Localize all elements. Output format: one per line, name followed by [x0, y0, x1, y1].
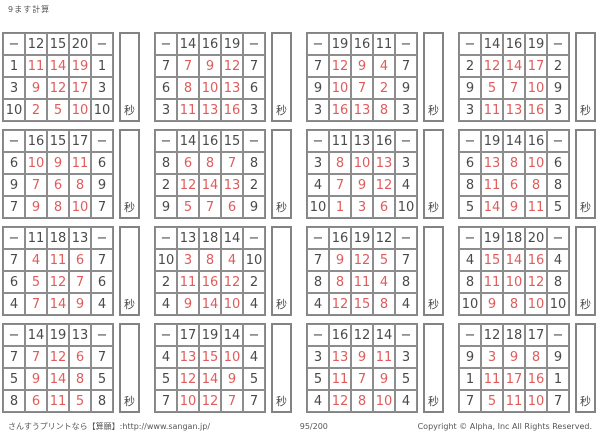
minus-sign-cell: − [243, 130, 265, 152]
answer-cell: 7 [221, 152, 243, 174]
minuend-cell: 13 [69, 227, 91, 249]
answer-cell: 5 [177, 196, 199, 218]
minuend-cell: 18 [503, 227, 525, 249]
answer-cell: 12 [373, 174, 395, 196]
answer-cell: 14 [47, 293, 69, 315]
calc-table-group: −131814−1038410211161224914104秒 [154, 226, 292, 316]
subtrahend-cell-right: 7 [243, 55, 265, 77]
answer-cell: 8 [351, 390, 373, 412]
seconds-box: 秒 [575, 129, 596, 219]
answer-cell: 12 [221, 55, 243, 77]
seconds-label: 秒 [124, 296, 135, 314]
subtrahend-cell-right: 5 [91, 368, 113, 390]
answer-cell: 17 [525, 55, 547, 77]
answer-cell: 9 [199, 55, 221, 77]
answer-cell: 5 [47, 99, 69, 121]
answer-cell: 13 [199, 99, 221, 121]
subtraction-table: −191416−61381068116885149115 [458, 129, 570, 219]
minuend-cell: 14 [481, 33, 503, 55]
minus-sign-cell: − [3, 33, 25, 55]
minus-sign-cell: − [155, 130, 177, 152]
answer-cell: 10 [221, 346, 243, 368]
answer-cell: 11 [177, 99, 199, 121]
answer-cell: 10 [525, 77, 547, 99]
seconds-label: 秒 [124, 102, 135, 120]
subtrahend-cell-right: 9 [243, 196, 265, 218]
answer-cell: 11 [351, 271, 373, 293]
answer-cell: 5 [25, 271, 47, 293]
answer-cell: 13 [221, 77, 243, 99]
answer-cell: 1 [329, 196, 351, 218]
answer-cell: 11 [481, 271, 503, 293]
answer-cell: 6 [503, 174, 525, 196]
subtrahend-cell-left: 3 [307, 99, 329, 121]
subtraction-table: −161214−31391135117954128104 [306, 323, 418, 413]
subtrahend-cell-left: 1 [3, 55, 25, 77]
answer-cell: 10 [525, 390, 547, 412]
worksheet-page: 9ます計算 −121520−11114191391217310251010秒−1… [0, 0, 600, 439]
subtrahend-cell-left: 3 [307, 346, 329, 368]
subtrahend-cell-right: 6 [91, 152, 113, 174]
subtrahend-cell-left: 8 [155, 152, 177, 174]
seconds-label: 秒 [428, 296, 439, 314]
minuend-cell: 17 [69, 130, 91, 152]
answer-cell: 13 [221, 174, 243, 196]
subtrahend-cell-left: 8 [459, 174, 481, 196]
subtrahend-cell-left: 7 [155, 390, 177, 412]
minuend-cell: 14 [177, 33, 199, 55]
subtraction-table: −141619−779127681013631113163 [154, 32, 266, 122]
answer-cell: 10 [525, 152, 547, 174]
minuend-cell: 12 [373, 227, 395, 249]
answer-cell: 6 [69, 249, 91, 271]
minus-sign-cell: − [547, 227, 569, 249]
answer-cell: 6 [69, 346, 91, 368]
minus-sign-cell: − [3, 130, 25, 152]
seconds-box: 秒 [575, 323, 596, 413]
answer-cell: 13 [481, 152, 503, 174]
answer-cell: 17 [69, 77, 91, 99]
answer-cell: 7 [503, 77, 525, 99]
answer-cell: 11 [47, 390, 69, 412]
answer-cell: 7 [69, 271, 91, 293]
answer-cell: 6 [221, 196, 243, 218]
answer-cell: 11 [503, 390, 525, 412]
answer-cell: 8 [69, 368, 91, 390]
answer-cell: 6 [177, 152, 199, 174]
subtrahend-cell-right: 5 [243, 368, 265, 390]
answer-cell: 8 [329, 271, 351, 293]
seconds-box: 秒 [423, 129, 444, 219]
subtrahend-cell-right: 7 [395, 249, 417, 271]
subtrahend-cell-right: 7 [91, 249, 113, 271]
answer-cell: 5 [69, 390, 91, 412]
subtrahend-cell-right: 7 [395, 55, 417, 77]
answer-cell: 9 [481, 293, 503, 315]
answer-cell: 16 [221, 99, 243, 121]
subtraction-table: −141619−2121417295710931113163 [458, 32, 570, 122]
subtraction-table: −161517−610911697689798107 [2, 129, 114, 219]
subtrahend-cell-left: 3 [307, 152, 329, 174]
answer-cell: 10 [199, 77, 221, 99]
answer-cell: 9 [221, 368, 243, 390]
minus-sign-cell: − [3, 227, 25, 249]
subtrahend-cell-left: 4 [155, 293, 177, 315]
answer-cell: 15 [351, 293, 373, 315]
subtrahend-cell-right: 8 [395, 271, 417, 293]
subtrahend-cell-left: 6 [155, 77, 177, 99]
minus-sign-cell: − [3, 324, 25, 346]
seconds-box: 秒 [271, 226, 292, 316]
minuend-cell: 19 [329, 33, 351, 55]
subtrahend-cell-left: 9 [459, 77, 481, 99]
subtrahend-cell-left: 6 [459, 152, 481, 174]
minus-sign-cell: − [459, 33, 481, 55]
minus-sign-cell: − [155, 227, 177, 249]
answer-cell: 7 [221, 390, 243, 412]
minuend-cell: 14 [177, 130, 199, 152]
calc-table-group: −161214−31391135117954128104秒 [306, 323, 444, 413]
answer-cell: 12 [177, 368, 199, 390]
subtrahend-cell-right: 6 [243, 77, 265, 99]
subtrahend-cell-left: 7 [155, 55, 177, 77]
calc-table-group: −141619−779127681013631113163秒 [154, 32, 292, 122]
answer-cell: 8 [503, 293, 525, 315]
answer-cell: 8 [329, 152, 351, 174]
answer-cell: 11 [373, 346, 395, 368]
subtrahend-cell-left: 4 [307, 174, 329, 196]
answer-cell: 10 [503, 271, 525, 293]
answer-cell: 11 [525, 196, 547, 218]
answer-cell: 14 [199, 174, 221, 196]
subtrahend-cell-left: 5 [307, 368, 329, 390]
subtrahend-cell-left: 4 [459, 249, 481, 271]
subtraction-table: −161912−7912578811484121584 [306, 226, 418, 316]
seconds-label: 秒 [428, 102, 439, 120]
answer-cell: 7 [177, 55, 199, 77]
answer-cell: 9 [373, 368, 395, 390]
answer-cell: 16 [525, 99, 547, 121]
answer-cell: 13 [373, 152, 395, 174]
seconds-label: 秒 [276, 393, 287, 411]
seconds-box: 秒 [119, 323, 140, 413]
subtrahend-cell-right: 3 [547, 99, 569, 121]
calc-table-group: −141615−868782121413295769秒 [154, 129, 292, 219]
seconds-box: 秒 [423, 32, 444, 122]
calc-table-group: −141913−771267591485861158秒 [2, 323, 140, 413]
seconds-label: 秒 [580, 199, 591, 217]
calc-table-group: −191416−61381068116885149115秒 [458, 129, 596, 219]
answer-cell: 16 [525, 249, 547, 271]
subtrahend-cell-left: 2 [155, 271, 177, 293]
minuend-cell: 19 [221, 33, 243, 55]
minus-sign-cell: − [307, 33, 329, 55]
answer-cell: 8 [373, 99, 395, 121]
seconds-label: 秒 [580, 296, 591, 314]
answer-cell: 12 [221, 271, 243, 293]
subtrahend-cell-left: 3 [459, 99, 481, 121]
minus-sign-cell: − [91, 324, 113, 346]
answer-cell: 9 [351, 174, 373, 196]
seconds-box: 秒 [271, 129, 292, 219]
answer-cell: 4 [221, 249, 243, 271]
minuend-cell: 12 [25, 33, 47, 55]
answer-cell: 11 [69, 152, 91, 174]
answer-cell: 10 [373, 390, 395, 412]
subtrahend-cell-left: 10 [3, 99, 25, 121]
seconds-box: 秒 [423, 226, 444, 316]
subtrahend-cell-left: 6 [3, 152, 25, 174]
subtrahend-cell-left: 9 [155, 196, 177, 218]
answer-cell: 8 [199, 249, 221, 271]
subtraction-table: −111316−38101334791241013610 [306, 129, 418, 219]
seconds-label: 秒 [428, 199, 439, 217]
calc-table-group: −161517−610911697689798107秒 [2, 129, 140, 219]
calc-table-group: −141619−2121417295710931113163秒 [458, 32, 596, 122]
minus-sign-cell: − [307, 227, 329, 249]
calc-table-group: −191611−7129479107293161383秒 [306, 32, 444, 122]
answer-cell: 8 [525, 174, 547, 196]
answer-cell: 5 [481, 390, 503, 412]
minuend-cell: 13 [177, 227, 199, 249]
subtrahend-cell-left: 3 [3, 77, 25, 99]
answer-cell: 5 [373, 249, 395, 271]
subtrahend-cell-right: 4 [395, 293, 417, 315]
minuend-cell: 16 [25, 130, 47, 152]
answer-cell: 13 [329, 346, 351, 368]
answer-cell: 9 [25, 368, 47, 390]
answer-cell: 14 [503, 55, 525, 77]
minuend-cell: 16 [199, 130, 221, 152]
answer-cell: 7 [25, 174, 47, 196]
calc-table-group: −191820−415141648111012810981010秒 [458, 226, 596, 316]
page-footer: さんすうプリントなら【算願】:http://www.sangan.jp/ 95/… [0, 421, 600, 432]
answer-cell: 7 [351, 77, 373, 99]
answer-cell: 16 [199, 271, 221, 293]
answer-cell: 2 [25, 99, 47, 121]
answer-cell: 7 [329, 174, 351, 196]
answer-cell: 4 [373, 271, 395, 293]
answer-cell: 6 [47, 174, 69, 196]
answer-cell: 11 [481, 99, 503, 121]
subtrahend-cell-left: 1 [459, 368, 481, 390]
minuend-cell: 16 [329, 324, 351, 346]
subtrahend-cell-right: 2 [547, 55, 569, 77]
answer-cell: 11 [329, 368, 351, 390]
subtrahend-cell-left: 4 [307, 390, 329, 412]
subtrahend-cell-right: 2 [243, 271, 265, 293]
seconds-label: 秒 [580, 102, 591, 120]
subtrahend-cell-left: 4 [307, 293, 329, 315]
subtrahend-cell-right: 3 [91, 77, 113, 99]
subtrahend-cell-left: 10 [307, 196, 329, 218]
answer-cell: 8 [199, 152, 221, 174]
answer-cell: 14 [47, 368, 69, 390]
subtrahend-cell-left: 7 [307, 249, 329, 271]
minus-sign-cell: − [547, 33, 569, 55]
seconds-box: 秒 [119, 129, 140, 219]
answer-cell: 12 [199, 390, 221, 412]
answer-cell: 10 [351, 152, 373, 174]
minus-sign-cell: − [547, 130, 569, 152]
minus-sign-cell: − [395, 130, 417, 152]
answer-cell: 5 [481, 77, 503, 99]
subtrahend-cell-left: 9 [459, 346, 481, 368]
seconds-box: 秒 [575, 32, 596, 122]
minuend-cell: 20 [525, 227, 547, 249]
answer-cell: 9 [25, 196, 47, 218]
minus-sign-cell: − [155, 324, 177, 346]
minus-sign-cell: − [307, 130, 329, 152]
answer-cell: 4 [373, 55, 395, 77]
subtraction-table: −191820−415141648111012810981010 [458, 226, 570, 316]
subtrahend-cell-left: 8 [3, 390, 25, 412]
subtraction-table: −131814−1038410211161224914104 [154, 226, 266, 316]
minus-sign-cell: − [91, 227, 113, 249]
minus-sign-cell: − [243, 33, 265, 55]
minus-sign-cell: − [243, 324, 265, 346]
answer-cell: 8 [503, 152, 525, 174]
subtraction-table: −141615−868782121413295769 [154, 129, 266, 219]
minus-sign-cell: − [459, 130, 481, 152]
subtrahend-cell-left: 7 [3, 249, 25, 271]
subtrahend-cell-right: 7 [91, 196, 113, 218]
answer-cell: 11 [25, 55, 47, 77]
subtrahend-cell-left: 8 [459, 271, 481, 293]
calc-table-group: −111316−38101334791241013610秒 [306, 129, 444, 219]
minuend-cell: 12 [481, 324, 503, 346]
seconds-label: 秒 [124, 199, 135, 217]
answer-cell: 7 [199, 196, 221, 218]
minuend-cell: 16 [373, 130, 395, 152]
minus-sign-cell: − [459, 324, 481, 346]
answer-cell: 9 [503, 196, 525, 218]
answer-cell: 10 [177, 390, 199, 412]
seconds-box: 秒 [119, 226, 140, 316]
answer-cell: 11 [47, 249, 69, 271]
subtrahend-cell-right: 5 [395, 368, 417, 390]
subtrahend-cell-left: 5 [459, 196, 481, 218]
subtrahend-cell-right: 3 [395, 346, 417, 368]
minuend-cell: 16 [525, 130, 547, 152]
minuend-cell: 11 [25, 227, 47, 249]
minus-sign-cell: − [547, 324, 569, 346]
subtrahend-cell-right: 3 [395, 99, 417, 121]
answer-cell: 13 [503, 99, 525, 121]
answer-cell: 9 [351, 346, 373, 368]
minuend-cell: 19 [481, 227, 503, 249]
minuend-cell: 17 [525, 324, 547, 346]
subtrahend-cell-left: 2 [155, 174, 177, 196]
minuend-cell: 18 [47, 227, 69, 249]
minuend-cell: 17 [177, 324, 199, 346]
answer-cell: 12 [329, 55, 351, 77]
minuend-cell: 14 [373, 324, 395, 346]
answer-cell: 15 [199, 346, 221, 368]
answer-cell: 8 [69, 174, 91, 196]
minuend-cell: 19 [351, 227, 373, 249]
answer-cell: 8 [47, 196, 69, 218]
answer-cell: 8 [177, 77, 199, 99]
calc-table-group: −111813−741167651276471494秒 [2, 226, 140, 316]
subtrahend-cell-right: 4 [243, 293, 265, 315]
subtrahend-cell-right: 3 [243, 99, 265, 121]
answer-cell: 6 [373, 196, 395, 218]
minuend-cell: 15 [221, 130, 243, 152]
minuend-cell: 18 [199, 227, 221, 249]
minuend-cell: 18 [503, 324, 525, 346]
subtrahend-cell-left: 7 [459, 390, 481, 412]
answer-cell: 12 [329, 293, 351, 315]
answer-cell: 12 [525, 271, 547, 293]
subtraction-table: −111813−741167651276471494 [2, 226, 114, 316]
answer-cell: 10 [525, 293, 547, 315]
seconds-label: 秒 [276, 102, 287, 120]
subtrahend-cell-right: 7 [91, 346, 113, 368]
answer-cell: 3 [351, 196, 373, 218]
minus-sign-cell: − [243, 227, 265, 249]
answer-cell: 8 [373, 293, 395, 315]
subtrahend-cell-left: 10 [155, 249, 177, 271]
minus-sign-cell: − [459, 227, 481, 249]
subtrahend-cell-left: 4 [155, 346, 177, 368]
seconds-label: 秒 [124, 393, 135, 411]
seconds-label: 秒 [428, 393, 439, 411]
answer-cell: 7 [25, 293, 47, 315]
answer-cell: 4 [25, 249, 47, 271]
seconds-box: 秒 [423, 323, 444, 413]
page-title: 9ます計算 [8, 4, 50, 15]
answer-cell: 8 [525, 346, 547, 368]
subtrahend-cell-right: 8 [91, 390, 113, 412]
minus-sign-cell: − [307, 324, 329, 346]
subtraction-table: −191611−7129479107293161383 [306, 32, 418, 122]
subtrahend-cell-right: 7 [547, 390, 569, 412]
subtrahend-cell-right: 9 [91, 174, 113, 196]
answer-cell: 14 [47, 55, 69, 77]
minus-sign-cell: − [91, 33, 113, 55]
subtrahend-cell-left: 9 [3, 174, 25, 196]
answer-cell: 12 [177, 174, 199, 196]
minuend-cell: 14 [221, 324, 243, 346]
minuend-cell: 15 [47, 33, 69, 55]
minus-sign-cell: − [395, 227, 417, 249]
answer-cell: 12 [329, 390, 351, 412]
answer-cell: 17 [503, 368, 525, 390]
subtraction-table: −141913−771267591485861158 [2, 323, 114, 413]
seconds-box: 秒 [575, 226, 596, 316]
worksheet-grid: −121520−11114191391217310251010秒−141619−… [2, 32, 596, 413]
subtraction-table: −121817−93989111171617511107 [458, 323, 570, 413]
answer-cell: 15 [481, 249, 503, 271]
minus-sign-cell: − [395, 324, 417, 346]
subtrahend-cell-right: 1 [91, 55, 113, 77]
seconds-label: 秒 [276, 199, 287, 217]
subtrahend-cell-left: 2 [459, 55, 481, 77]
answer-cell: 11 [481, 174, 503, 196]
subtrahend-cell-right: 4 [395, 390, 417, 412]
minuend-cell: 16 [503, 33, 525, 55]
answer-cell: 7 [25, 346, 47, 368]
subtrahend-cell-left: 7 [3, 346, 25, 368]
subtrahend-cell-left: 7 [307, 55, 329, 77]
answer-cell: 16 [525, 368, 547, 390]
subtrahend-cell-left: 5 [3, 368, 25, 390]
subtrahend-cell-right: 10 [395, 196, 417, 218]
subtrahend-cell-left: 4 [3, 293, 25, 315]
subtrahend-cell-right: 10 [91, 99, 113, 121]
answer-cell: 10 [69, 99, 91, 121]
